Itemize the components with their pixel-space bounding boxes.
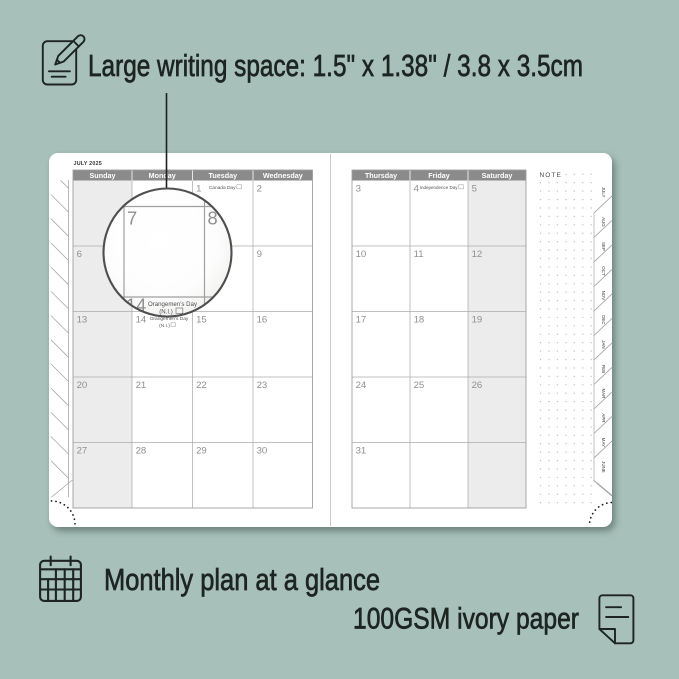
svg-text:Monthly plan at a glance: Monthly plan at a glance xyxy=(104,563,380,597)
svg-text:15: 15 xyxy=(196,314,207,325)
svg-text:JULY 2025: JULY 2025 xyxy=(74,161,102,167)
svg-text:FEB: FEB xyxy=(601,365,606,374)
svg-text:12: 12 xyxy=(472,249,483,260)
svg-text:Canada Day: Canada Day xyxy=(209,185,236,191)
svg-text:27: 27 xyxy=(77,445,88,456)
svg-text:Thursday: Thursday xyxy=(365,171,397,180)
svg-text:5: 5 xyxy=(472,183,477,194)
svg-text:JUNE: JUNE xyxy=(601,461,606,473)
svg-text:7: 7 xyxy=(127,208,137,229)
svg-text:NOTE: NOTE xyxy=(540,172,562,179)
svg-text:3: 3 xyxy=(356,183,361,194)
svg-text:19: 19 xyxy=(472,314,483,325)
svg-text:31: 31 xyxy=(356,445,367,456)
svg-text:14: 14 xyxy=(136,314,147,325)
svg-text:1: 1 xyxy=(196,183,201,194)
svg-text:13: 13 xyxy=(77,314,88,325)
svg-text:18: 18 xyxy=(414,314,425,325)
svg-text:6: 6 xyxy=(77,249,82,260)
svg-text:4: 4 xyxy=(414,183,420,194)
svg-text:Orangemen’s Day: Orangemen’s Day xyxy=(148,301,198,308)
svg-text:Tuesday: Tuesday xyxy=(208,171,237,180)
svg-text:20: 20 xyxy=(77,380,88,391)
svg-text:9: 9 xyxy=(257,249,262,260)
svg-text:30: 30 xyxy=(257,445,268,456)
svg-text:24: 24 xyxy=(356,380,367,391)
svg-text:Friday: Friday xyxy=(428,171,450,180)
svg-text:DEC: DEC xyxy=(601,315,606,324)
svg-text:22: 22 xyxy=(196,380,207,391)
svg-text:JAN: JAN xyxy=(601,340,606,348)
svg-text:SEP: SEP xyxy=(601,242,606,251)
svg-text:2: 2 xyxy=(257,183,262,194)
svg-text:Saturday: Saturday xyxy=(482,171,513,180)
svg-text:Wednesday: Wednesday xyxy=(263,171,303,180)
svg-text:28: 28 xyxy=(136,445,147,456)
svg-text:APR: APR xyxy=(601,413,606,422)
svg-text:16: 16 xyxy=(257,314,268,325)
svg-text:(N.I.): (N.I.) xyxy=(159,308,173,315)
svg-text:Large writing space: 1.5" x 1.: Large writing space: 1.5" x 1.38" / 3.8 … xyxy=(88,48,583,83)
svg-text:Monday: Monday xyxy=(149,171,176,180)
svg-text:17: 17 xyxy=(356,314,367,325)
svg-text:JULY: JULY xyxy=(601,187,606,197)
svg-text:NOV: NOV xyxy=(601,291,606,301)
svg-text:100GSM ivory paper: 100GSM ivory paper xyxy=(353,603,579,636)
svg-text:11: 11 xyxy=(414,249,424,260)
svg-text:Independence Day: Independence Day xyxy=(420,185,459,190)
svg-text:23: 23 xyxy=(257,380,268,391)
svg-text:MAR: MAR xyxy=(601,389,606,399)
svg-text:21: 21 xyxy=(136,380,147,391)
svg-text:AUG: AUG xyxy=(601,217,606,227)
svg-text:(N.I.): (N.I.) xyxy=(159,323,170,329)
svg-text:29: 29 xyxy=(196,445,207,456)
svg-text:10: 10 xyxy=(356,249,367,260)
svg-text:OCT: OCT xyxy=(601,266,606,276)
svg-text:Sunday: Sunday xyxy=(90,171,116,180)
svg-text:26: 26 xyxy=(472,380,483,391)
svg-text:MAY: MAY xyxy=(601,438,606,447)
svg-text:25: 25 xyxy=(414,380,425,391)
